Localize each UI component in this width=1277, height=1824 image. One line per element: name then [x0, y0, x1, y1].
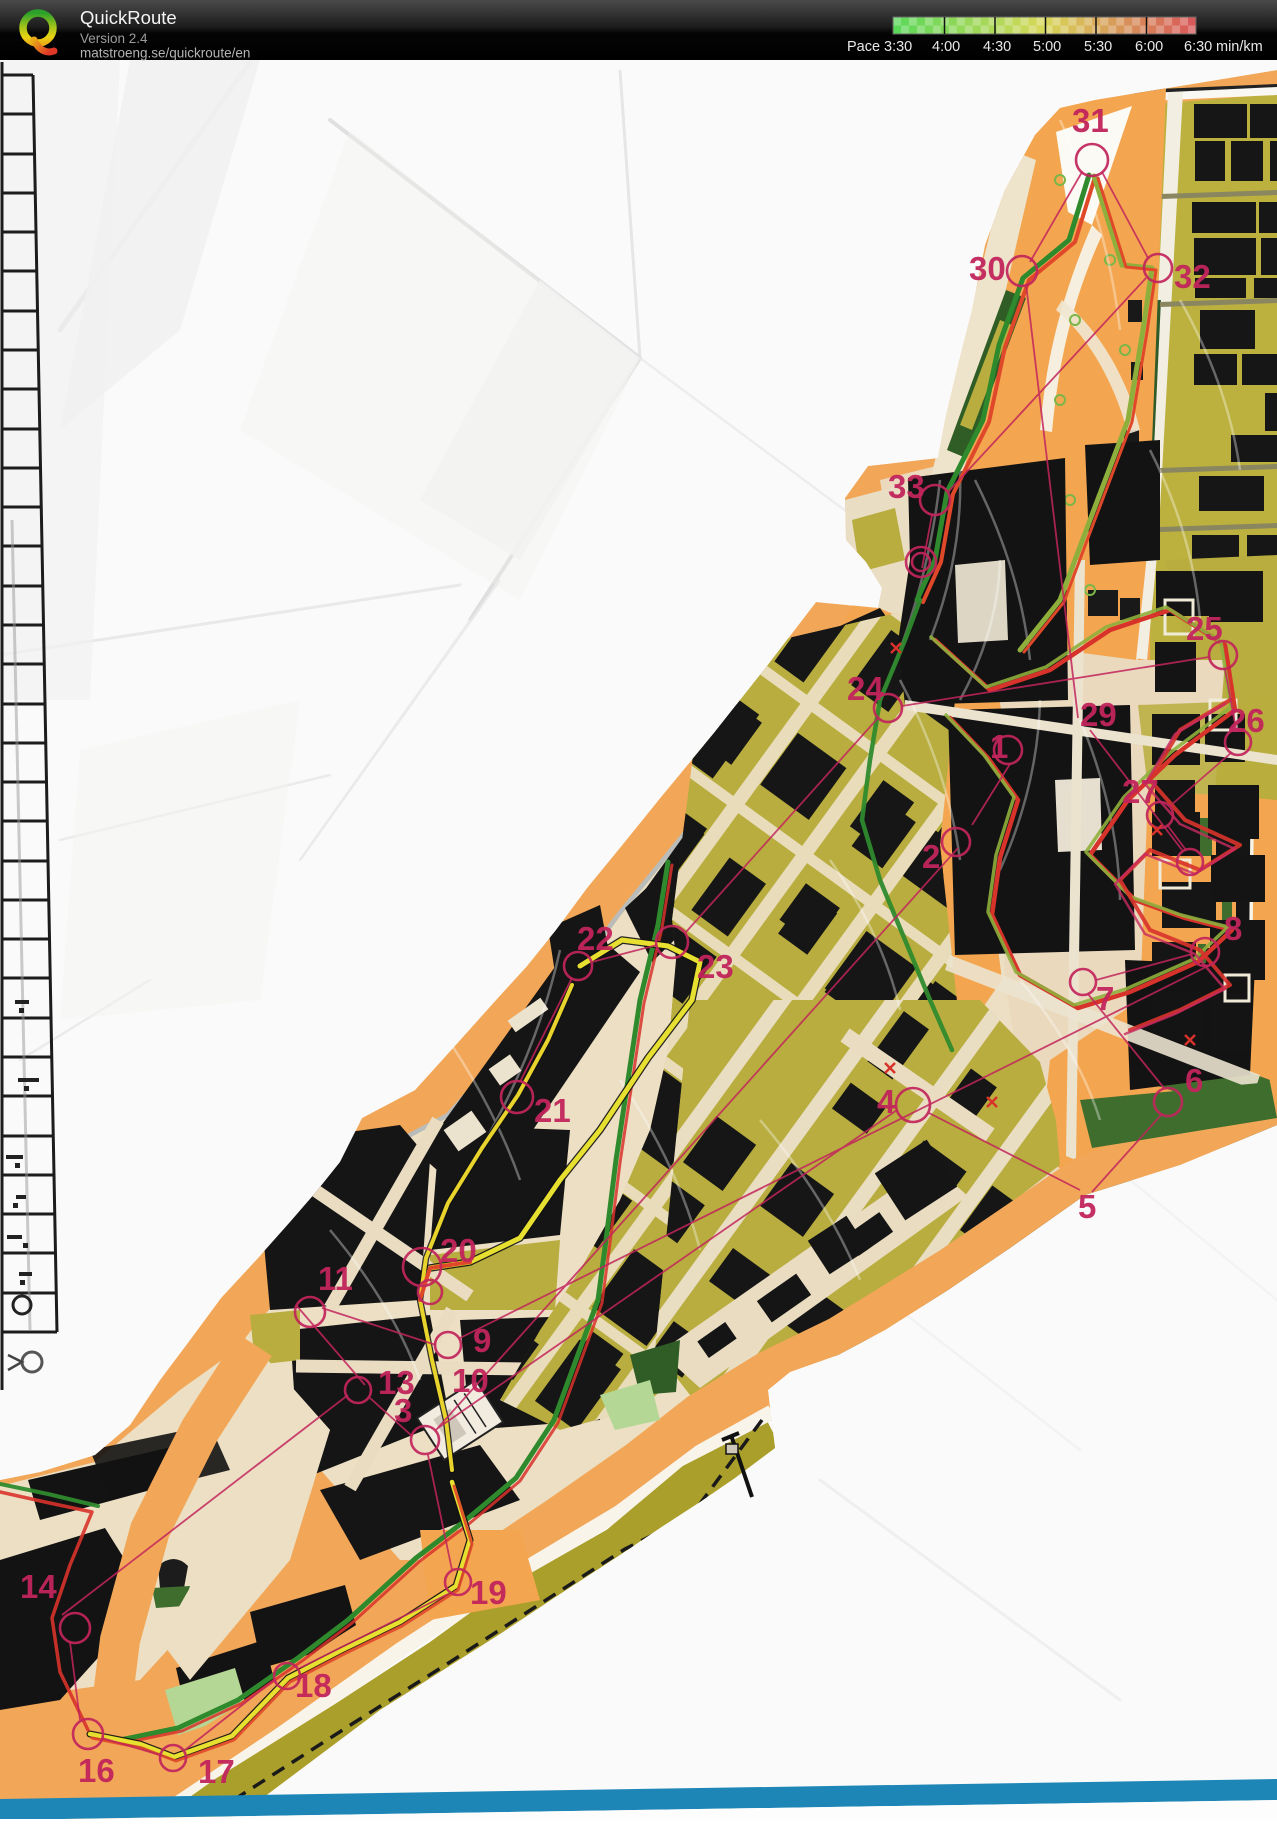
svg-text:6:30: 6:30: [1184, 39, 1212, 55]
svg-text:Pace: Pace: [847, 39, 880, 55]
svg-text:33: 33: [888, 468, 925, 505]
svg-text:Version 2.4: Version 2.4: [80, 31, 148, 46]
svg-text:18: 18: [295, 1667, 332, 1704]
svg-text:22: 22: [577, 920, 614, 957]
svg-text:5:00: 5:00: [1033, 39, 1061, 55]
svg-text:4:30: 4:30: [983, 39, 1011, 55]
svg-text:27: 27: [1122, 773, 1159, 810]
svg-text:5: 5: [1078, 1188, 1096, 1225]
svg-text:10: 10: [452, 1362, 489, 1399]
svg-text:6: 6: [1185, 1062, 1203, 1099]
svg-text:4:00: 4:00: [932, 39, 960, 55]
svg-text:19: 19: [470, 1574, 507, 1611]
svg-text:31: 31: [1072, 102, 1109, 139]
svg-text:25: 25: [1186, 610, 1223, 647]
svg-text:8: 8: [1224, 910, 1242, 947]
svg-text:29: 29: [1080, 696, 1117, 733]
svg-text:11: 11: [318, 1260, 353, 1297]
svg-text:14: 14: [20, 1568, 57, 1605]
svg-text:23: 23: [697, 948, 734, 985]
svg-text:26: 26: [1228, 702, 1265, 739]
svg-text:30: 30: [969, 250, 1006, 287]
svg-text:5:30: 5:30: [1084, 39, 1112, 55]
svg-text:20: 20: [440, 1232, 477, 1269]
svg-text:32: 32: [1174, 258, 1211, 295]
svg-text:3:30: 3:30: [884, 39, 912, 55]
svg-text:3: 3: [394, 1392, 412, 1429]
svg-text:24: 24: [847, 670, 884, 707]
svg-text:4: 4: [877, 1083, 896, 1120]
svg-text:9: 9: [473, 1322, 491, 1359]
svg-text:21: 21: [534, 1092, 571, 1129]
svg-text:6:00: 6:00: [1135, 39, 1163, 55]
svg-text:2: 2: [922, 838, 940, 875]
svg-text:1: 1: [990, 728, 1008, 765]
svg-text:matstroeng.se/quickroute/en: matstroeng.se/quickroute/en: [80, 46, 250, 61]
svg-text:7: 7: [1096, 980, 1114, 1017]
svg-text:17: 17: [198, 1753, 235, 1790]
svg-text:QuickRoute: QuickRoute: [80, 7, 177, 28]
svg-text:min/km: min/km: [1216, 39, 1263, 55]
svg-text:16: 16: [78, 1752, 115, 1789]
